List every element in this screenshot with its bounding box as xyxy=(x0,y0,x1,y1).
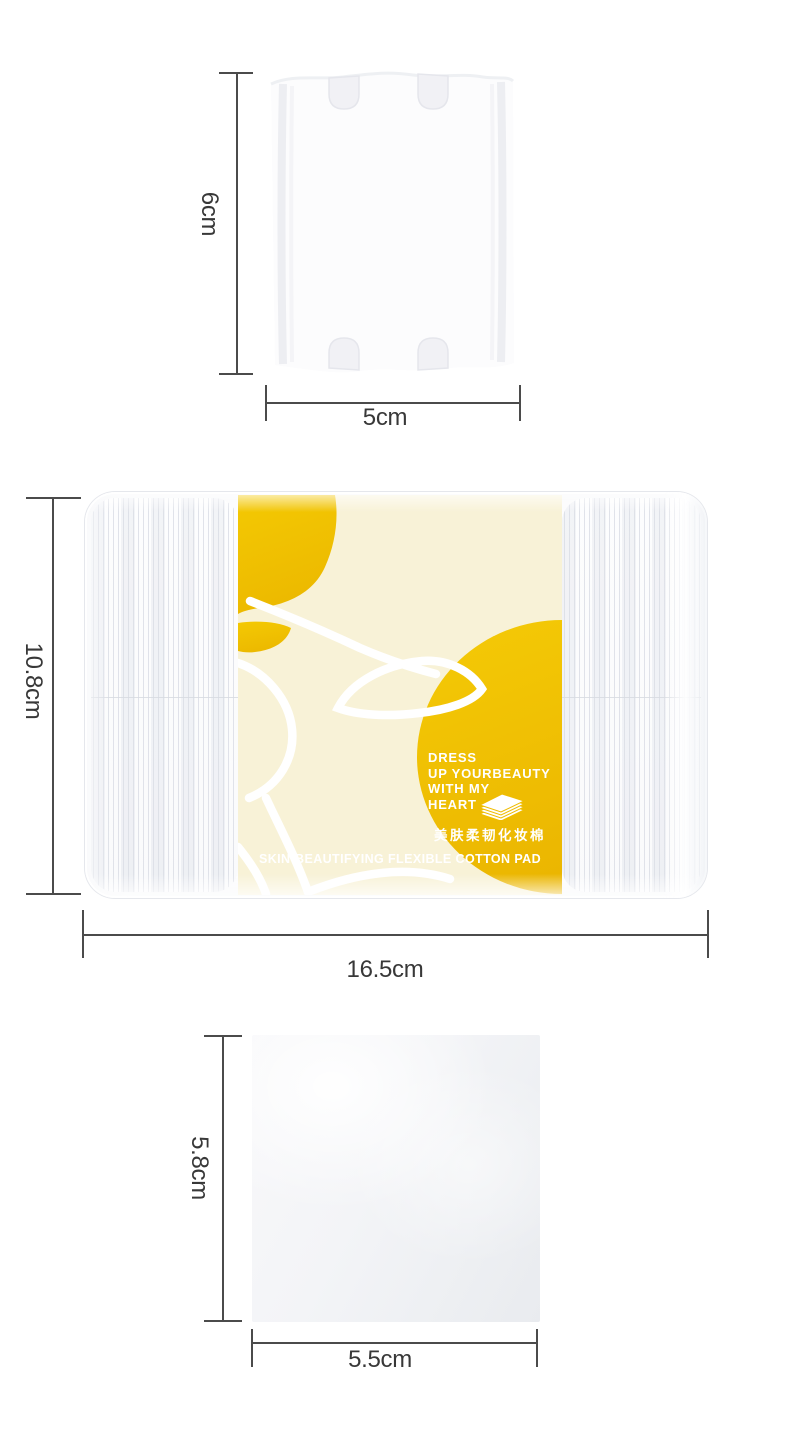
single-pad-width-label: 5cm xyxy=(335,404,435,432)
pad-stack-divider xyxy=(91,697,238,698)
dimension-cap xyxy=(536,1329,538,1367)
dimension-cap xyxy=(204,1320,242,1322)
pad-stack-left xyxy=(91,498,238,892)
dimension-cap xyxy=(519,385,521,421)
slogan-line: UP YOURBEAUTY xyxy=(428,766,551,782)
inner-pad-width-label: 5.5cm xyxy=(320,1346,440,1374)
package-height-label: 10.8cm xyxy=(20,626,46,736)
inner-pad-width-line xyxy=(252,1342,538,1344)
inner-cotton-pad-photo xyxy=(252,1035,540,1322)
dimension-cap xyxy=(265,385,267,421)
single-pad-height-label: 6cm xyxy=(196,174,222,254)
slogan-line: DRESS xyxy=(428,750,551,766)
dimension-cap xyxy=(26,497,81,499)
cotton-pad-package-photo: DRESS UP YOURBEAUTY WITH MY HEART 美肤柔韧化妆… xyxy=(85,492,707,898)
product-size-diagram: 6cm 5cm 10.8cm xyxy=(0,0,790,1449)
dimension-cap xyxy=(82,910,84,958)
dimension-cap xyxy=(26,893,81,895)
dimension-cap xyxy=(204,1035,242,1037)
dimension-cap xyxy=(219,72,253,74)
inner-pad-height-label: 5.8cm xyxy=(186,1118,212,1218)
product-name-chinese: 美肤柔韧化妆棉 xyxy=(434,824,546,844)
single-pad-height-line xyxy=(236,73,238,375)
pad-stack-right xyxy=(562,498,701,892)
inner-pad-height-line xyxy=(222,1036,224,1322)
single-cotton-pad-photo xyxy=(265,68,518,378)
dimension-cap xyxy=(707,910,709,958)
package-label: DRESS UP YOURBEAUTY WITH MY HEART 美肤柔韧化妆… xyxy=(238,495,562,895)
package-width-label: 16.5cm xyxy=(325,956,445,984)
dimension-cap xyxy=(251,1329,253,1367)
package-width-line xyxy=(83,934,708,936)
product-name-english: SKIN-BEAUTIFYING FLEXIBLE COTTON PAD xyxy=(238,852,562,866)
dimension-cap xyxy=(219,373,253,375)
pad-stack-divider xyxy=(562,697,701,698)
cotton-pad-stack-icon xyxy=(474,792,530,820)
yellow-blob xyxy=(238,495,337,614)
package-height-line xyxy=(52,498,54,894)
